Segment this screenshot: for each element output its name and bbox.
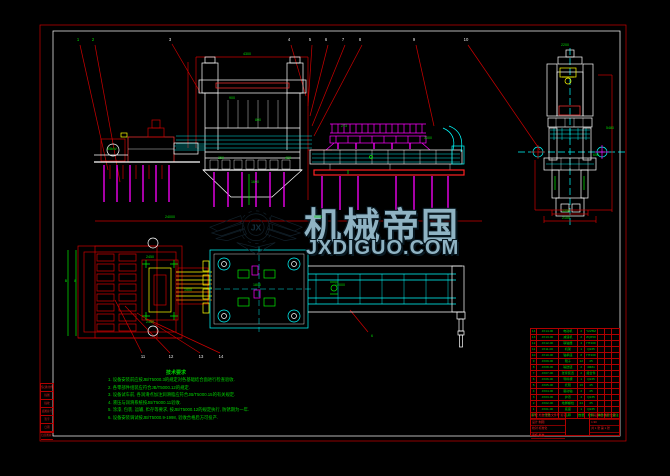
bom-cell: HT200 xyxy=(585,341,597,347)
dim-label: 9000 xyxy=(314,215,322,219)
balloon-label: 2 xyxy=(92,38,94,42)
dim-label: B xyxy=(65,279,67,283)
balloon-label: 8 xyxy=(359,38,361,42)
cad-drawing-sheet: line,rect,circle,path,polygon{fill:none;… xyxy=(0,0,670,476)
bom-cell: HT200 xyxy=(585,353,597,359)
note-line: 6. 设备安装调试按JB/T5000.9-1998, 验收合格后方可投产. xyxy=(108,414,258,422)
dim-label: 900 xyxy=(229,96,235,100)
dim-label: 273 xyxy=(341,124,347,128)
title-block-row: 阶段标记 重量 比例 xyxy=(590,413,619,420)
balloon-label: 6 xyxy=(325,38,327,42)
dim-label: 24000 xyxy=(165,215,175,219)
title-block-signatures: 标记 处数 更改文件号 签字 日期设计 制图校对 标准化审核 批准 xyxy=(531,413,566,435)
title-block-row: 1:30 xyxy=(590,420,619,427)
watermark-site: JXDIGUO.COM xyxy=(306,237,459,260)
dim-label: 55kW xyxy=(107,147,116,151)
balloon-label: 14 xyxy=(219,355,224,359)
border-signature-strip: 借(通)用件登记描图描校底图总号签字日期旧底图总号 xyxy=(40,383,54,433)
title-block-row: 校对 标准化 xyxy=(531,426,565,433)
dim-label: 2450 xyxy=(146,320,154,324)
title-block-row: 共 1 张 第 1 张 xyxy=(590,426,619,433)
note-line: 3. 设备试车前, 各润滑点加注润滑脂应符合JB/T5000.15的有关规定. xyxy=(108,391,258,399)
note-line: 4. 液压与润滑系统按JB/T5000.11验收. xyxy=(108,399,258,407)
strip-row: 日期 xyxy=(41,424,53,432)
title-block: 标记 处数 更改文件号 签字 日期设计 制图校对 标准化审核 批准 阶段标记 重… xyxy=(530,412,620,436)
dim-label: 6 xyxy=(371,334,373,338)
dim-label: 800 xyxy=(255,118,261,122)
balloon-label: 12 xyxy=(169,355,174,359)
dim-label: 650 xyxy=(593,153,599,157)
dim-label: 1800 xyxy=(253,283,261,287)
balloon-label: 13 xyxy=(199,355,204,359)
watermark: JX 机械帝国 JXDIGUO.COM xyxy=(208,196,468,266)
dim-label: 420 xyxy=(285,156,291,160)
title-block-scale: 阶段标记 重量 比例1:30共 1 张 第 1 张 xyxy=(590,413,619,435)
strip-row: 借(通)用件登记 xyxy=(41,384,53,392)
balloon-label: 10 xyxy=(464,38,469,42)
strip-row: 旧底图总号 xyxy=(41,432,53,440)
title-block-row: 审核 批准 xyxy=(531,433,565,440)
logo-monogram: JX xyxy=(251,223,262,233)
dim-label: 4300 xyxy=(243,52,251,56)
strip-row: 签字 xyxy=(41,416,53,424)
bom-parts-table: 14JX14-00电动机2Y225M13JX13-00减速机2ZQ65012JX… xyxy=(530,328,620,419)
dim-label: 350 xyxy=(218,156,224,160)
bom-cell: ZQ650 xyxy=(585,335,597,341)
balloon-label: 9 xyxy=(413,38,415,42)
dim-label: 1250 xyxy=(562,209,570,213)
balloon-label: 1 xyxy=(77,38,79,42)
strip-row: 描校 xyxy=(41,400,53,408)
title-block-row: 标记 处数 更改文件号 签字 日期 xyxy=(531,413,565,420)
note-line: 1. 设备安装前应按JB/T5000.3的规定对各基础结合面进行检查验收. xyxy=(108,376,258,384)
dim-label: 3000 xyxy=(424,136,432,140)
notes-header: 技术要求 xyxy=(136,369,216,376)
balloon-label: 11 xyxy=(141,355,145,359)
bom-cell: Y225M xyxy=(585,329,597,335)
press-front-view xyxy=(176,57,332,207)
notes-lines: 1. 设备安装前应按JB/T5000.3的规定对各基础结合面进行检查验收.2. … xyxy=(108,376,258,422)
dim-label: 5480 xyxy=(606,126,614,130)
title-block-middle xyxy=(566,413,590,435)
press-side-view xyxy=(518,48,626,228)
dim-label: 2200 xyxy=(561,43,569,47)
strip-row: 描图 xyxy=(41,392,53,400)
balloon-label: 7 xyxy=(342,38,344,42)
technical-notes: 技术要求 1. 设备安装前应按JB/T5000.3的规定对各基础结合面进行检查验… xyxy=(108,369,258,422)
dim-label: 1900 xyxy=(184,288,192,292)
bom-cell: 组合件 xyxy=(585,371,597,377)
balloon-label: 4 xyxy=(288,38,290,42)
dim-label: 1600 xyxy=(251,180,259,184)
winged-gear-logo-icon: JX xyxy=(208,202,304,262)
dim-label: 8 xyxy=(74,279,76,283)
dim-label: 2450 xyxy=(146,255,154,259)
note-line: 2. 各零部件组装应符合JB/T5000.12的规定. xyxy=(108,384,258,392)
balloon-label: 3 xyxy=(169,38,171,42)
balloon-label: 5 xyxy=(309,38,311,42)
dim-label: 2100 xyxy=(562,216,570,220)
note-line: 5. 涂漆, 包装, 运输, 贮存等要求, 按JB/T5000.12的规定执行,… xyxy=(108,406,258,414)
dim-label: 12000 xyxy=(335,283,345,287)
title-block-row: 设计 制图 xyxy=(531,420,565,427)
strip-row: 底图总号 xyxy=(41,408,53,416)
